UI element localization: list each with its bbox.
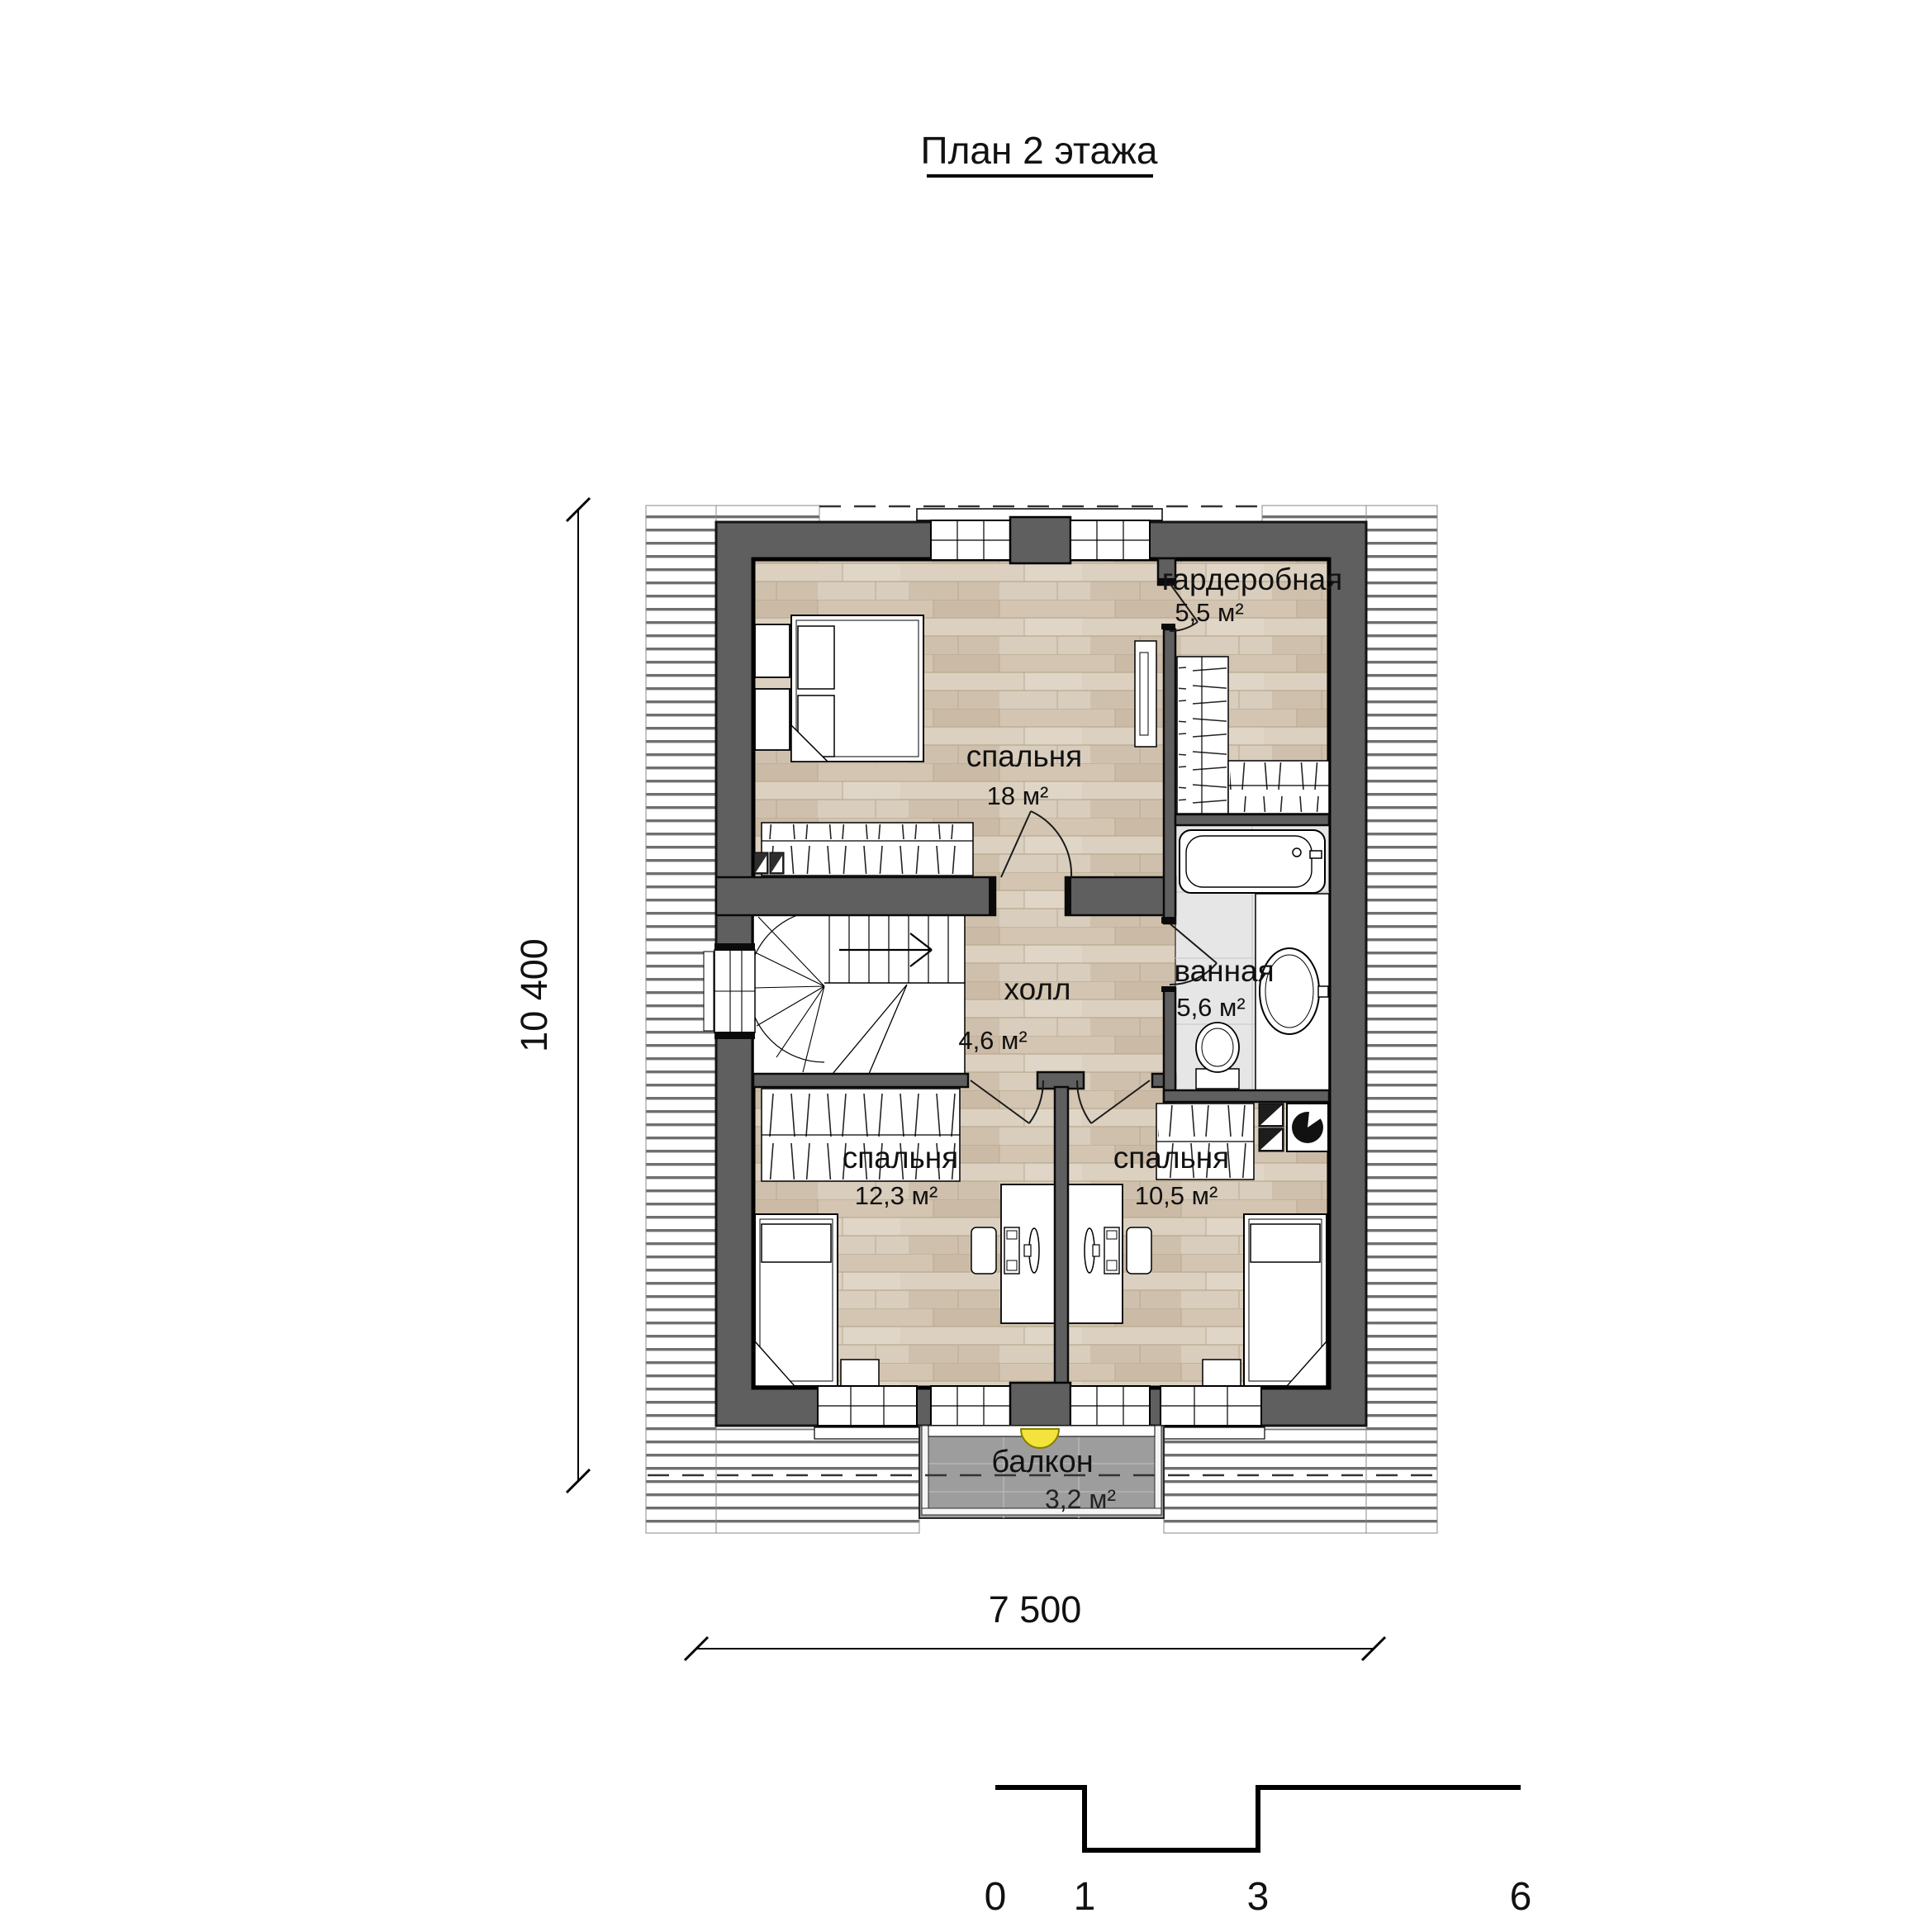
pillow: [1251, 1224, 1320, 1262]
sink-faucet: [1318, 986, 1328, 997]
floor-plan-page: План 2 этажа: [0, 0, 1932, 1932]
chair: [971, 1227, 996, 1274]
bedside-table: [841, 1360, 879, 1386]
window-balcony-2: [1070, 1386, 1150, 1426]
nightstand: [755, 689, 790, 750]
title-text: План 2 этажа: [921, 129, 1158, 172]
nightstand: [755, 624, 790, 677]
floor-plan-drawing: План 2 этажа: [0, 0, 1932, 1932]
monitor-stand: [1024, 1245, 1031, 1256]
toilet: [1196, 1023, 1239, 1089]
window-top-2: [1070, 520, 1150, 560]
bathtub-drain: [1293, 848, 1301, 857]
label-bathroom: ванная: [1174, 954, 1274, 988]
bathtub-faucet: [1310, 851, 1322, 858]
scale-label-6: 6: [1510, 1875, 1532, 1919]
area-balcony: 3,2 м²: [1045, 1484, 1116, 1514]
window-balcony-1: [931, 1386, 1010, 1426]
dim-horizontal-value: 7 500: [989, 1588, 1082, 1631]
bedside-table: [1203, 1360, 1241, 1386]
window-sill-bottom-right: [1157, 1427, 1265, 1439]
area-hall: 4,6 м²: [958, 1026, 1027, 1055]
scale-bar: 0 1 3 6: [985, 1787, 1532, 1919]
scale-label-1: 1: [1074, 1875, 1096, 1919]
dim-vertical-value: 10 400: [513, 938, 555, 1052]
roof-hatch-bottom-right: [1164, 1429, 1366, 1533]
roof-hatch-top-left: [716, 506, 819, 522]
chair: [1127, 1227, 1151, 1274]
scale-label-0: 0: [985, 1875, 1007, 1919]
label-bedroom-right: спальня: [1113, 1141, 1229, 1175]
label-bedroom-left: спальня: [843, 1141, 958, 1175]
balcony-rail-left: [922, 1426, 928, 1515]
dimension-horizontal: 7 500: [685, 1588, 1385, 1660]
window-sill-bottom-left: [814, 1427, 920, 1439]
area-bathroom: 5,6 м²: [1176, 993, 1245, 1022]
area-bedroom-main: 18 м²: [987, 781, 1049, 810]
area-bedroom-right: 10,5 м²: [1135, 1181, 1218, 1210]
window-top-1: [931, 520, 1010, 560]
balcony-rail-right: [1155, 1426, 1161, 1515]
pillow: [762, 1224, 831, 1262]
wall-pier-bottom: [1010, 1383, 1070, 1429]
roof-hatch-top-right: [1262, 506, 1366, 522]
area-bedroom-left: 12,3 м²: [855, 1181, 938, 1210]
scale-label-3: 3: [1247, 1875, 1270, 1919]
monitor-stand: [1093, 1245, 1099, 1256]
label-bedroom-main: спальня: [966, 739, 1082, 773]
window-left: [704, 943, 755, 1039]
label-wardrobe-room: гардеробная: [1162, 563, 1343, 596]
window-bottom-left: [818, 1386, 917, 1426]
roof-hatch-right: [1366, 506, 1437, 1533]
label-hall: холл: [1004, 972, 1070, 1006]
roof-hatch-bottom-left: [716, 1429, 919, 1533]
window-bottom-right: [1161, 1386, 1261, 1426]
pillow: [798, 626, 834, 689]
balcony-rail-bottom: [922, 1508, 1161, 1515]
wall-pier-top: [1010, 517, 1070, 563]
page-title: План 2 этажа: [921, 129, 1158, 176]
area-wardrobe-room: 5,5 м²: [1175, 598, 1243, 627]
staircase: [748, 910, 965, 1075]
dimension-vertical: 10 400: [513, 498, 590, 1493]
label-balcony: балкон: [991, 1445, 1093, 1479]
